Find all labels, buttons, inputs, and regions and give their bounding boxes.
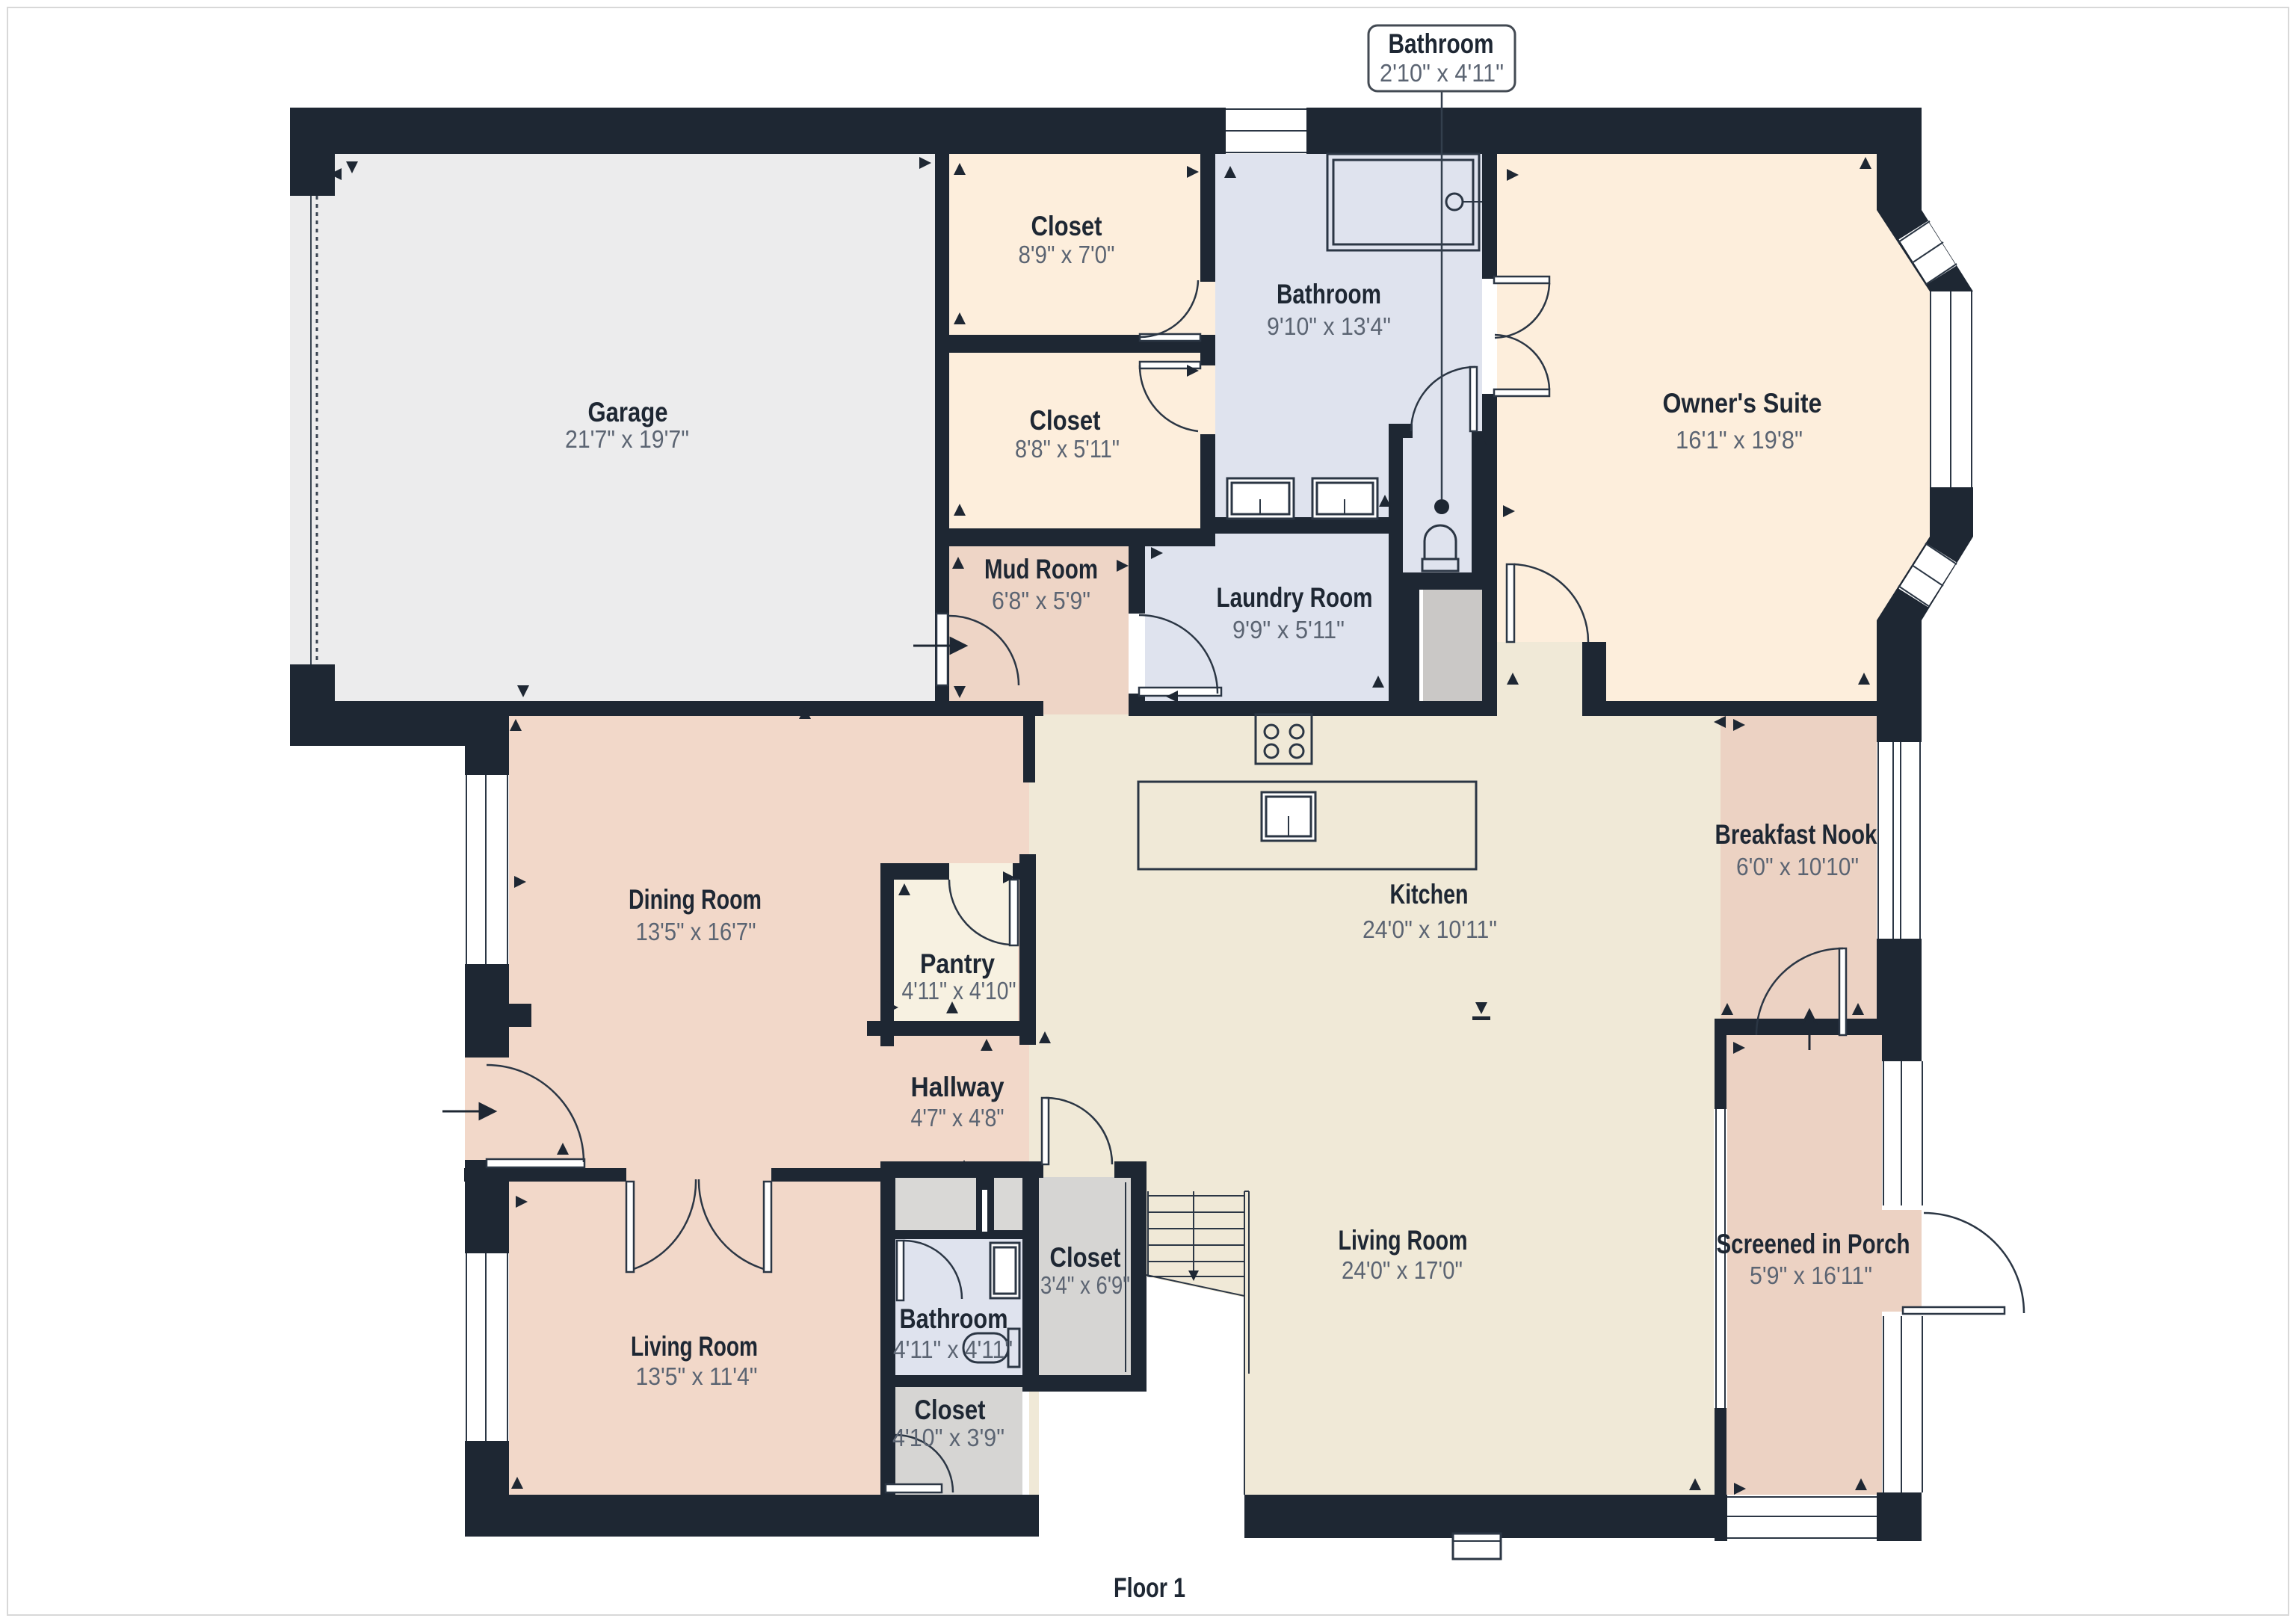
svg-text:5'9" x 16'11": 5'9" x 16'11" bbox=[1750, 1262, 1872, 1289]
svg-text:3'4" x 6'9": 3'4" x 6'9" bbox=[1040, 1271, 1130, 1299]
svg-text:Bathroom: Bathroom bbox=[1277, 279, 1381, 309]
svg-text:Closet: Closet bbox=[915, 1395, 986, 1425]
svg-text:Living Room: Living Room bbox=[1339, 1225, 1468, 1256]
svg-text:8'8" x 5'11": 8'8" x 5'11" bbox=[1015, 435, 1120, 463]
svg-text:Breakfast Nook: Breakfast Nook bbox=[1715, 819, 1877, 850]
svg-text:Mud Room: Mud Room bbox=[984, 554, 1098, 584]
svg-text:13'5" x 11'4": 13'5" x 11'4" bbox=[636, 1362, 758, 1390]
svg-text:Hallway: Hallway bbox=[911, 1072, 1004, 1102]
svg-text:Living Room: Living Room bbox=[631, 1331, 758, 1362]
svg-text:21'7" x 19'7": 21'7" x 19'7" bbox=[565, 425, 689, 453]
svg-text:Owner's Suite: Owner's Suite bbox=[1663, 388, 1822, 419]
svg-text:6'8" x 5'9": 6'8" x 5'9" bbox=[992, 587, 1090, 614]
svg-text:24'0" x 10'11": 24'0" x 10'11" bbox=[1363, 916, 1497, 943]
svg-text:6'0" x 10'10": 6'0" x 10'10" bbox=[1736, 853, 1859, 880]
svg-text:9'9" x 5'11": 9'9" x 5'11" bbox=[1232, 616, 1345, 643]
svg-text:Bathroom: Bathroom bbox=[900, 1303, 1008, 1334]
svg-text:16'1" x 19'8": 16'1" x 19'8" bbox=[1676, 426, 1803, 454]
svg-text:Screened in Porch: Screened in Porch bbox=[1717, 1229, 1910, 1259]
svg-text:Bathroom: Bathroom bbox=[1389, 28, 1494, 59]
svg-text:Kitchen: Kitchen bbox=[1390, 879, 1469, 910]
svg-text:Closet: Closet bbox=[1031, 211, 1102, 241]
svg-text:4'11" x 4'10": 4'11" x 4'10" bbox=[902, 977, 1016, 1004]
svg-text:Closet: Closet bbox=[1030, 405, 1101, 436]
svg-text:4'7" x 4'8": 4'7" x 4'8" bbox=[911, 1104, 1004, 1131]
svg-text:Laundry Room: Laundry Room bbox=[1217, 582, 1373, 613]
svg-text:13'5" x 16'7": 13'5" x 16'7" bbox=[636, 918, 756, 945]
svg-text:9'10" x 13'4": 9'10" x 13'4" bbox=[1267, 312, 1391, 340]
svg-text:24'0" x 17'0": 24'0" x 17'0" bbox=[1342, 1256, 1463, 1284]
svg-text:Closet: Closet bbox=[1050, 1242, 1121, 1273]
svg-text:Pantry: Pantry bbox=[920, 948, 995, 979]
svg-text:Garage: Garage bbox=[588, 397, 668, 427]
svg-text:4'11" x 4'11": 4'11" x 4'11" bbox=[893, 1336, 1013, 1363]
svg-text:Floor 1: Floor 1 bbox=[1114, 1572, 1185, 1603]
svg-text:4'10" x 3'9": 4'10" x 3'9" bbox=[892, 1424, 1004, 1451]
svg-text:2'10" x 4'11": 2'10" x 4'11" bbox=[1380, 59, 1504, 87]
svg-text:8'9" x 7'0": 8'9" x 7'0" bbox=[1019, 241, 1115, 268]
svg-text:Dining Room: Dining Room bbox=[629, 884, 762, 915]
